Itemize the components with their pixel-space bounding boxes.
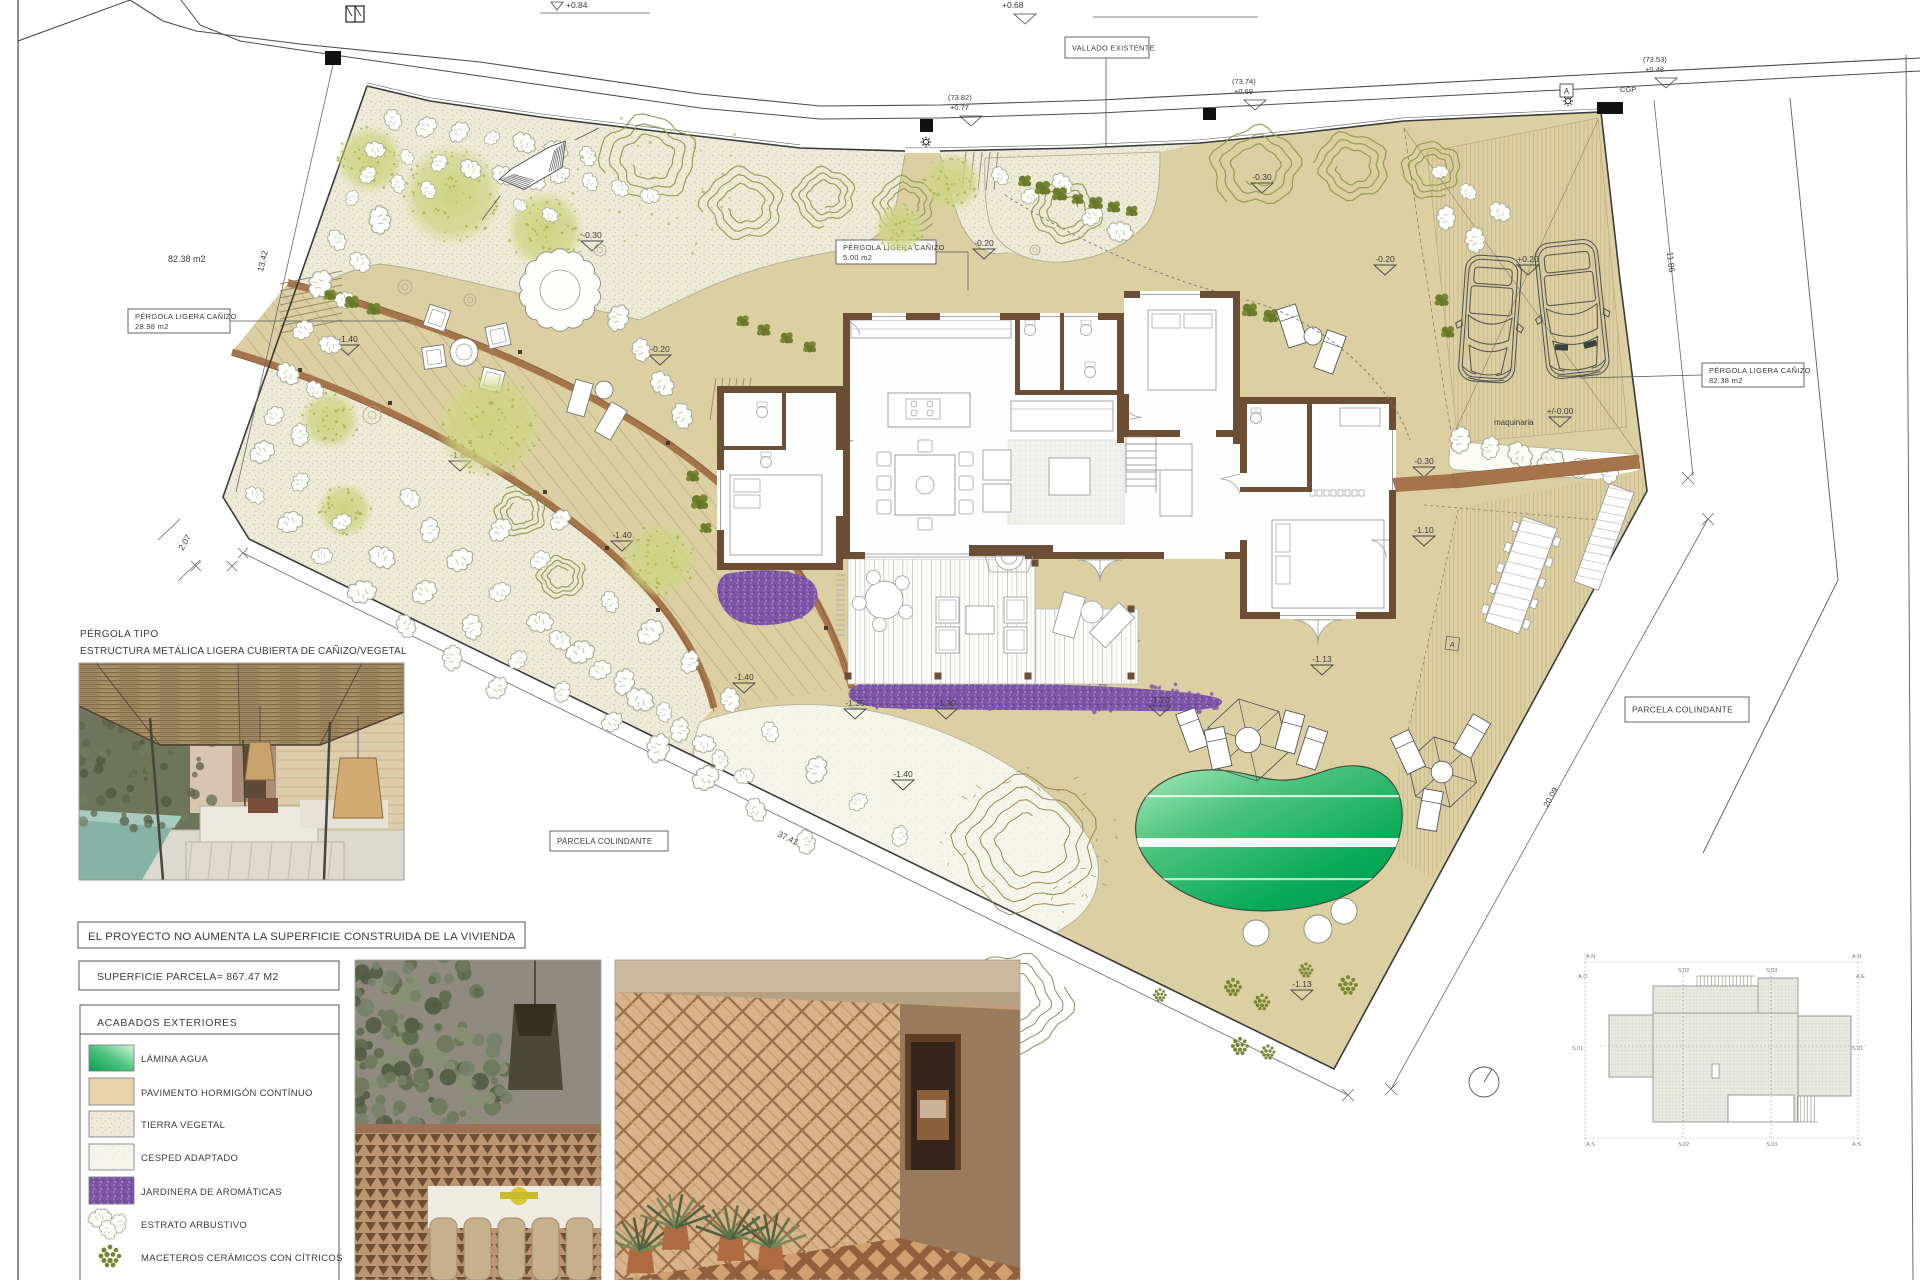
svg-text:CESPED ADAPTADO: CESPED ADAPTADO [141,1153,238,1164]
svg-text:MACETEROS CERÁMICOS CON CÍTRIC: MACETEROS CERÁMICOS CON CÍTRICOS [141,1253,343,1264]
svg-text:-0.20: -0.20 [974,238,994,248]
svg-text:PÉRGOLA LIGERA CAÑIZO: PÉRGOLA LIGERA CAÑIZO [135,312,237,321]
svg-text:(73.74): (73.74) [1232,77,1256,86]
svg-text:A: A [1564,87,1570,96]
svg-text:-1.20: -1.20 [1150,695,1170,705]
svg-text:maquinaria: maquinaria [1494,418,1534,427]
svg-text:S.02: S.02 [1678,968,1689,974]
svg-text:VALLADO EXISTENTE: VALLADO EXISTENTE [1072,44,1155,53]
svg-text:-1.40: -1.40 [338,334,358,344]
svg-text:A.E: A.E [1856,974,1865,980]
svg-text:A.N: A.N [1852,954,1861,960]
svg-text:PARCELA COLINDANTE: PARCELA COLINDANTE [557,837,653,846]
svg-text:-1.13: -1.13 [1312,654,1332,664]
svg-text:-0.20: -0.20 [1375,254,1395,264]
svg-text:-1.40: -1.40 [893,769,913,779]
svg-text:+0.48: +0.48 [1645,65,1664,74]
svg-text:PARCELA COLINDANTE: PARCELA COLINDANTE [1632,705,1733,715]
svg-text:-1.30: -1.30 [936,698,956,708]
svg-text:PÉRGOLA TIPO: PÉRGOLA TIPO [80,627,159,640]
svg-text:JARDINERA DE AROMÁTICAS: JARDINERA DE AROMÁTICAS [141,1187,282,1198]
svg-text:S.03: S.03 [1766,968,1777,974]
svg-text:-0.20: -0.20 [650,344,670,354]
svg-text:+/-0.00: +/-0.00 [1547,406,1574,416]
svg-text:-0.30: -0.30 [1252,172,1272,182]
svg-text:S.03: S.03 [1766,1142,1777,1148]
svg-text:LÁMINA AGUA: LÁMINA AGUA [141,1054,209,1065]
svg-text:ESTRATO ARBUSTIVO: ESTRATO ARBUSTIVO [141,1220,247,1231]
svg-text:(73.82): (73.82) [948,93,972,102]
svg-text:TIERRA VEGETAL: TIERRA VEGETAL [141,1120,225,1131]
svg-text:28.98 m2: 28.98 m2 [135,322,169,331]
svg-text:-0.30: -0.30 [582,230,602,240]
svg-text:S.02: S.02 [1678,1142,1689,1148]
svg-text:-1.35: -1.35 [845,698,865,708]
svg-text:A.S: A.S [1586,1142,1595,1148]
svg-text:S.01: S.01 [1852,1046,1863,1052]
svg-text:+0.68: +0.68 [1002,0,1024,10]
svg-text:A.S: A.S [1852,1142,1861,1148]
svg-text:82.38 m2: 82.38 m2 [1709,376,1743,385]
svg-text:EL PROYECTO NO AUMENTA LA SUPE: EL PROYECTO NO AUMENTA LA SUPERFICIE CON… [88,931,516,943]
svg-text:+0.20: +0.20 [1517,254,1539,264]
svg-text:82.38 m2: 82.38 m2 [168,254,206,264]
svg-text:-1.13: -1.13 [1292,979,1312,989]
svg-text:ACABADOS EXTERIORES: ACABADOS EXTERIORES [97,1017,237,1029]
svg-text:5.00 m2: 5.00 m2 [843,253,872,262]
svg-text:CGP: CGP [1620,85,1636,94]
svg-text:A.O: A.O [1578,974,1588,980]
svg-text:A.N: A.N [1586,954,1595,960]
svg-text:-1.10: -1.10 [1414,525,1434,535]
svg-text:+0.69: +0.69 [1234,87,1253,96]
svg-text:ESTRUCTURA METÁLICA LIGERA CUB: ESTRUCTURA METÁLICA LIGERA CUBIERTA DE C… [80,644,407,657]
svg-text:+0.84: +0.84 [566,0,588,10]
svg-text:PÉRGOLA LIGERA CAÑIZO: PÉRGOLA LIGERA CAÑIZO [1709,366,1811,375]
svg-text:(73.53): (73.53) [1643,55,1667,64]
svg-text:-1.40: -1.40 [734,672,754,682]
svg-text:SUPERFICIE PARCELA= 867.47 M2: SUPERFICIE PARCELA= 867.47 M2 [97,971,279,983]
svg-text:+0.77: +0.77 [950,103,969,112]
svg-text:-0.30: -0.30 [1414,456,1434,466]
svg-text:PAVIMENTO HORMIGÓN CONTÍNUO: PAVIMENTO HORMIGÓN CONTÍNUO [141,1088,313,1099]
svg-text:S.01: S.01 [1572,1046,1583,1052]
